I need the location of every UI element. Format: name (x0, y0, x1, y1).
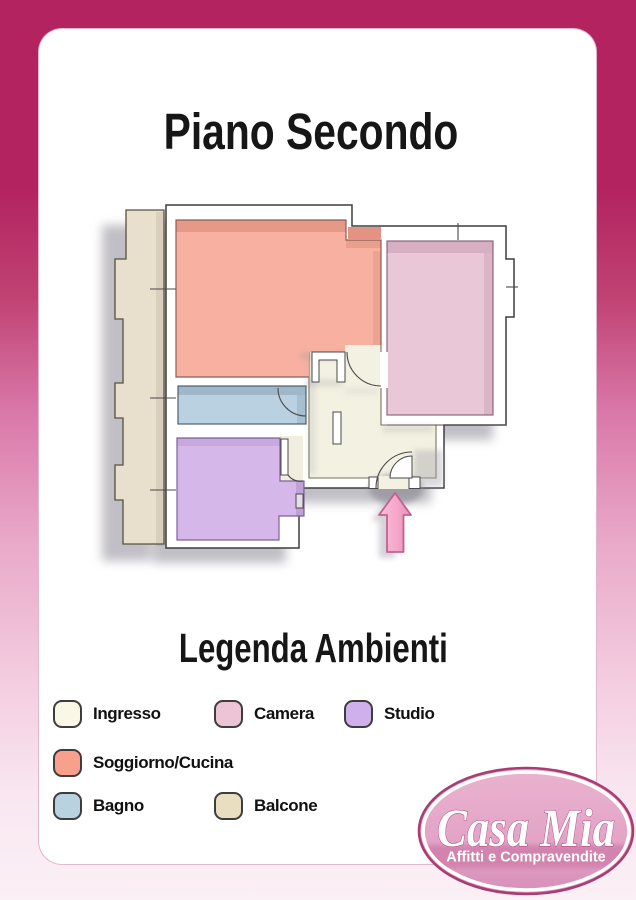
svg-text:Affitti e Compravendite: Affitti e Compravendite (446, 850, 606, 866)
